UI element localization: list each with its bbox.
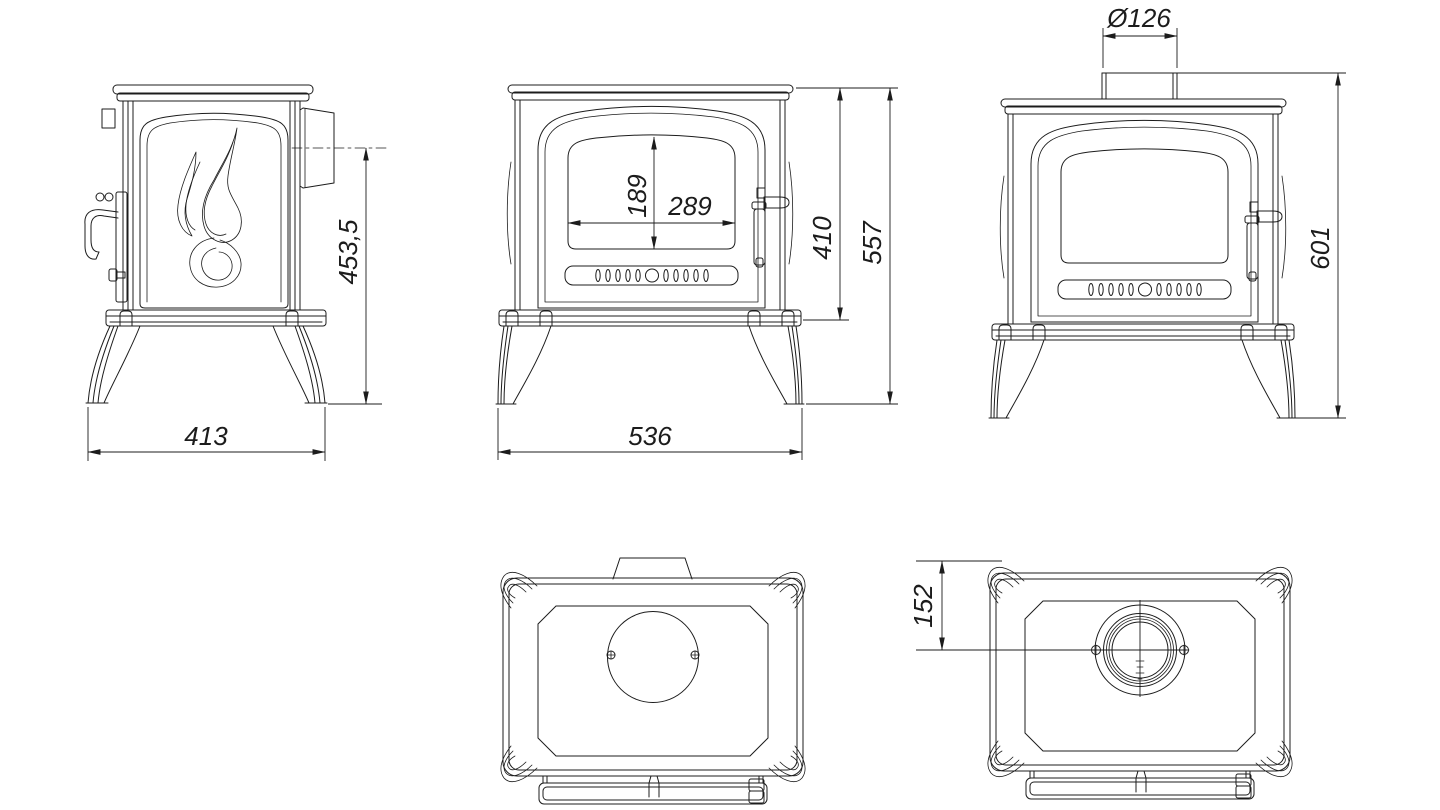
drawing-sheet: 453,5 413 189 289 410 55 <box>0 0 1440 810</box>
dimension-flue-height: 453,5 <box>328 148 382 404</box>
dimension-body-height: 410 <box>796 88 898 320</box>
back-leg <box>273 326 327 403</box>
dim-label-depth: 413 <box>184 421 228 451</box>
front-leg <box>86 326 140 403</box>
side-view: 453,5 413 <box>85 85 388 461</box>
top-hinge <box>102 109 115 128</box>
dim-label-body-height: 410 <box>807 216 837 260</box>
dim-label-overall-height: 557 <box>857 220 887 265</box>
dimension-height-with-collar: 601 <box>1177 73 1346 418</box>
dimension-depth: 413 <box>88 407 325 461</box>
door-handle <box>85 192 127 302</box>
front-view: 189 289 410 557 536 <box>496 85 898 460</box>
rear-flue-view: Ø126 601 <box>989 3 1346 418</box>
dim-label-overall-width: 536 <box>628 421 672 451</box>
dim-label-height-with-collar: 601 <box>1305 226 1335 269</box>
flue-blanking-plate <box>608 612 699 703</box>
dimension-glass-height: 189 <box>622 137 654 249</box>
dim-label-flue-diameter: Ø126 <box>1106 3 1171 33</box>
flame-motif <box>178 128 242 287</box>
dim-label-flue-height: 453,5 <box>333 219 363 285</box>
rear-flue-stub <box>613 558 692 579</box>
dimension-overall-width: 536 <box>498 408 802 460</box>
dim-label-flue-offset: 152 <box>908 584 938 628</box>
top-view-with-collar: 152 <box>908 561 1292 799</box>
technical-drawing-canvas: 453,5 413 189 289 410 55 <box>0 0 1440 810</box>
dimension-flue-offset: 152 <box>908 561 1002 650</box>
dim-label-glass-height: 189 <box>622 174 652 217</box>
top-view <box>501 558 805 804</box>
blanking-screw-right <box>691 651 699 659</box>
base-plinth <box>106 310 326 326</box>
flue-pipe <box>1102 73 1177 99</box>
dim-label-glass-width: 289 <box>667 191 711 221</box>
blanking-screw-left <box>607 651 615 659</box>
side-panel <box>140 113 288 308</box>
dimension-flue-diameter: Ø126 <box>1103 3 1177 68</box>
